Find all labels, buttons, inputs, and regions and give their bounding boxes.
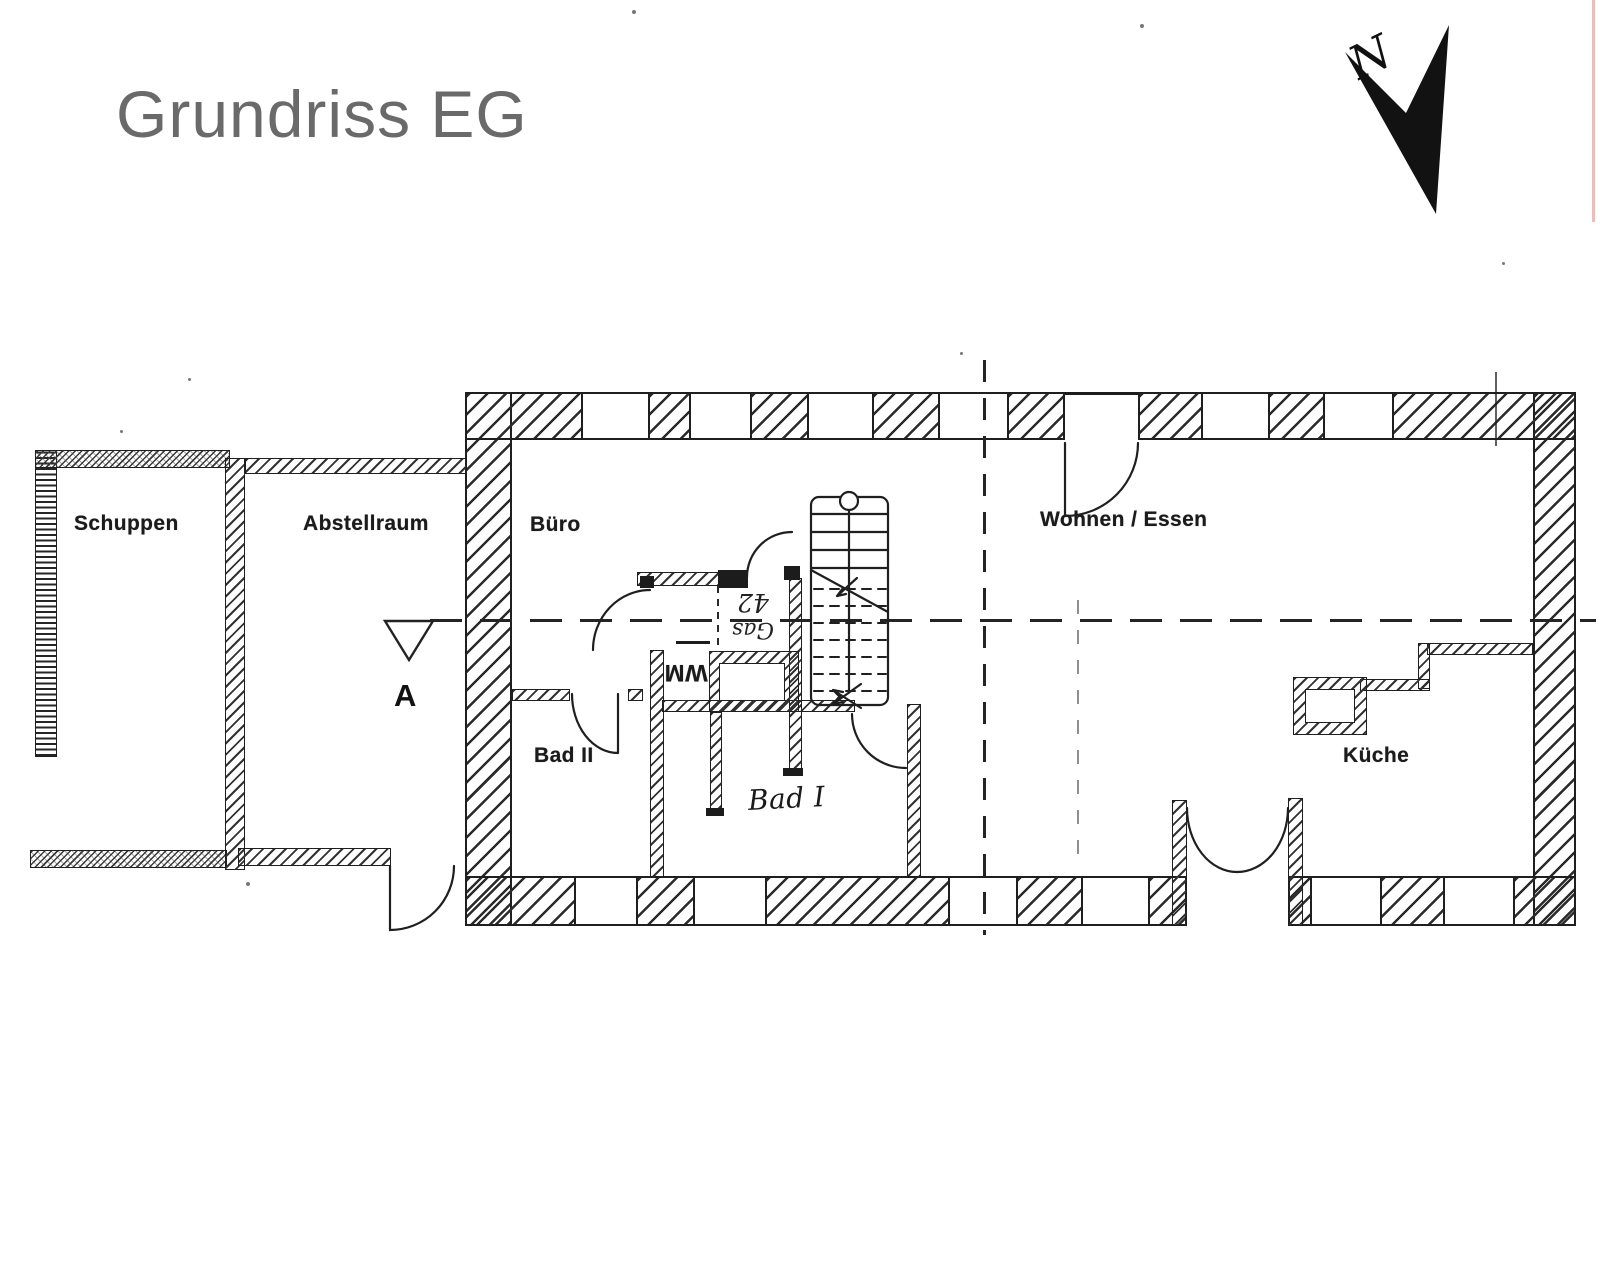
door-swing-entry [1065, 443, 1138, 516]
stair-arrow [837, 578, 857, 596]
stair-outline [811, 497, 888, 705]
wall-segment [465, 876, 576, 926]
window-opening [1203, 392, 1268, 440]
window-opening [1312, 876, 1380, 926]
wall-segment [1007, 392, 1065, 440]
section-marker-label: A [394, 678, 416, 714]
room-label-kueche: Küche [1343, 744, 1409, 768]
wall-segment [1513, 876, 1576, 926]
stair-start-circle [840, 492, 858, 510]
north-label: N [1340, 24, 1400, 90]
door-swing-storage [390, 866, 454, 930]
wall-divider [225, 458, 245, 870]
door-swing-double-left [1187, 808, 1237, 872]
window-opening [583, 392, 648, 440]
wall-bad1-right [907, 704, 921, 877]
shed-wall-top [35, 450, 230, 468]
reference-line-vertical [983, 360, 986, 935]
room-label-abstellraum: Abstellraum [303, 512, 429, 536]
wall-segment [636, 876, 695, 926]
scan-speck [632, 10, 636, 14]
scan-edge-artifact [1592, 0, 1595, 222]
shed-wall-bottom [30, 850, 227, 868]
door-lintel-line [1065, 392, 1138, 395]
wall-segment [765, 876, 950, 926]
section-line-a [430, 619, 1596, 622]
counter-line [676, 641, 710, 644]
wall-segment [872, 392, 940, 440]
scan-speck [246, 882, 250, 886]
window-opening [809, 392, 872, 440]
wall-segment [1392, 392, 1576, 440]
chimney-flue [1305, 689, 1355, 723]
wall-bad2-top [512, 689, 570, 701]
scan-speck [188, 378, 191, 381]
gas-annotation-word: Gas [722, 616, 784, 642]
room-label-schuppen: Schuppen [74, 512, 179, 536]
washing-machine-label: WM [660, 658, 712, 686]
wm-closet-interior [719, 663, 785, 701]
door-post [784, 566, 800, 580]
gas-annotation-number: 42 [722, 588, 784, 616]
door-post [640, 576, 654, 588]
wall-segment [1380, 876, 1445, 926]
room-label-wohnen-essen: Wohnen / Essen [1040, 508, 1207, 532]
staircase [811, 492, 888, 708]
floor-plan-page: Grundriss EG N [0, 0, 1600, 1281]
wall-kitchen-top [1427, 643, 1533, 655]
section-marker-triangle [385, 621, 433, 660]
wall-segment [1016, 876, 1083, 926]
wall-end-cap [706, 808, 724, 816]
window-opening [1445, 876, 1513, 926]
wall-bad2-top [628, 689, 643, 701]
wall-right-outer [1533, 392, 1576, 926]
reference-line-vertical-2 [1077, 600, 1079, 862]
room-label-bad2: Bad II [534, 744, 594, 768]
window-opening [576, 876, 636, 926]
wall-segment [465, 392, 583, 440]
wall-segment [1138, 392, 1203, 440]
scan-speck [1502, 262, 1505, 265]
scan-speck [960, 352, 963, 355]
storage-wall-top [245, 458, 467, 474]
gas-annotation: Gas 42 [722, 582, 784, 642]
scan-speck [120, 430, 123, 433]
wall-segment [648, 392, 691, 440]
stair-treads-dashed [814, 589, 886, 691]
opening-dashed-line [717, 586, 719, 652]
window-opening [691, 392, 750, 440]
wall-kitchen-top [1360, 679, 1430, 691]
wall-end-cap [783, 768, 803, 776]
wall-stub [710, 712, 722, 815]
wall-segment [1268, 392, 1325, 440]
reference-tick [1495, 372, 1497, 446]
room-label-bad1: Bad I [747, 780, 826, 817]
scan-speck [1140, 24, 1144, 28]
door-swing-bath1 [852, 714, 906, 768]
door-jamb-wall [1172, 800, 1187, 926]
window-opening [1325, 392, 1392, 440]
door-jamb-wall [1288, 798, 1303, 926]
window-opening [1083, 876, 1148, 926]
door-swing-double-right [1237, 808, 1288, 872]
page-title: Grundriss EG [116, 76, 528, 152]
window-opening [940, 392, 1007, 440]
shed-wall-left [35, 450, 57, 757]
room-label-buero: Büro [530, 513, 581, 537]
stair-treads-solid [811, 514, 888, 568]
storage-wall-bottom [238, 848, 391, 866]
stair-break-line [811, 570, 888, 612]
wall-segment [750, 392, 809, 440]
wall-left-outer [465, 392, 512, 926]
window-opening [695, 876, 765, 926]
